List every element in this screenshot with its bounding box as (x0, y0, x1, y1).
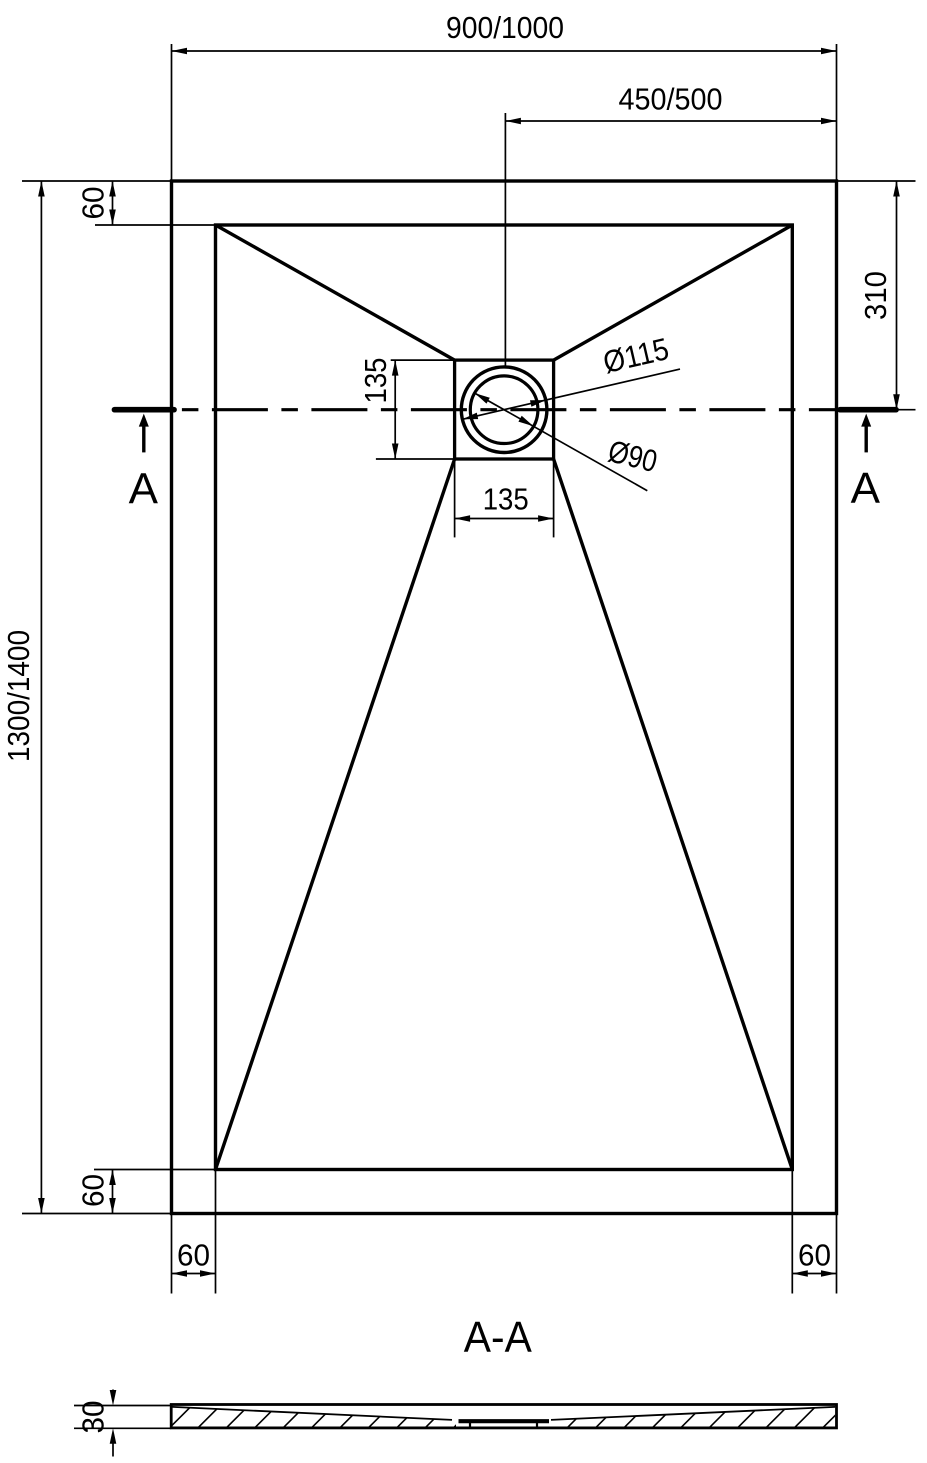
svg-text:A: A (129, 465, 159, 514)
svg-text:135: 135 (483, 481, 529, 516)
svg-text:A: A (851, 464, 881, 513)
svg-text:60: 60 (798, 1237, 831, 1272)
svg-text:A-A: A-A (464, 1313, 533, 1362)
svg-text:1300/1400: 1300/1400 (1, 630, 36, 762)
svg-text:60: 60 (177, 1237, 210, 1272)
svg-text:60: 60 (75, 1174, 110, 1207)
svg-text:310: 310 (858, 271, 893, 320)
svg-text:900/1000: 900/1000 (446, 10, 564, 45)
svg-text:60: 60 (75, 187, 110, 220)
svg-text:30: 30 (75, 1401, 110, 1434)
svg-text:450/500: 450/500 (619, 81, 723, 116)
svg-text:135: 135 (358, 358, 393, 404)
